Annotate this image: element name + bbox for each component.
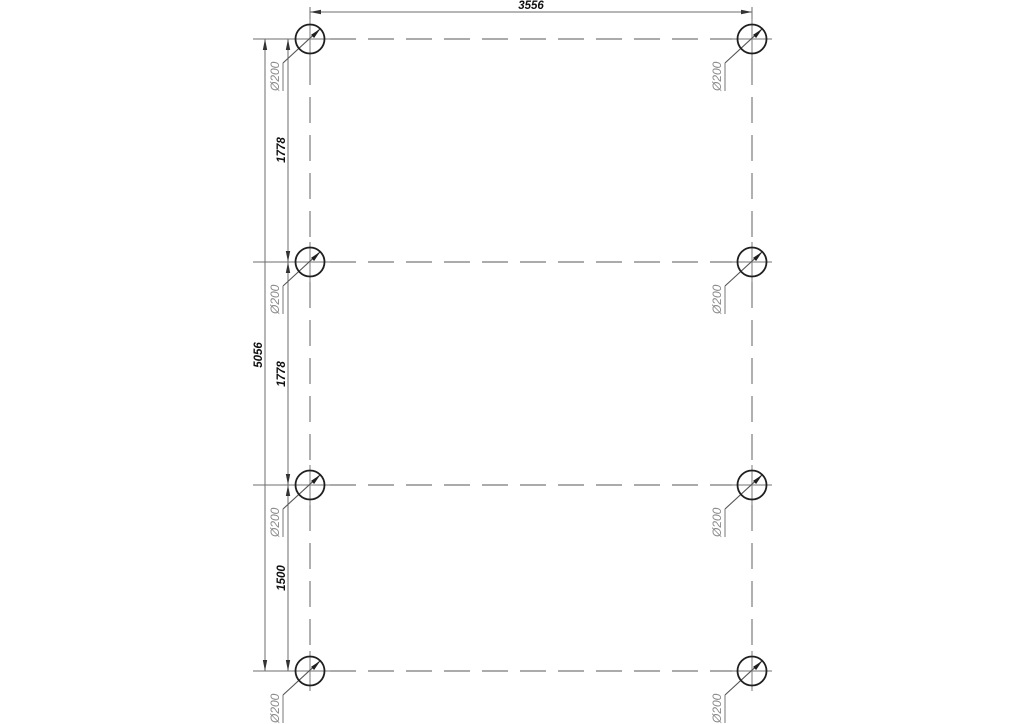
pile-marker: Ø200 xyxy=(710,651,772,724)
pile-marker: Ø200 xyxy=(710,242,772,315)
arrow-down-icon xyxy=(286,251,290,262)
total-dimension-value: 5056 xyxy=(253,342,265,368)
pile-layout-drawing: 3556 5056 1778 1778 1500 Ø200 Ø200 Ø2 xyxy=(0,0,1024,724)
arrow-up-icon xyxy=(286,485,290,496)
arrow-down-icon xyxy=(286,660,290,671)
pile-diameter-label: Ø200 xyxy=(710,693,724,724)
pile-marker: Ø200 xyxy=(268,242,330,315)
pile-marker: Ø200 xyxy=(710,465,772,538)
chain-segment-3-value: 1500 xyxy=(276,565,288,591)
arrow-up-icon xyxy=(286,262,290,273)
top-dimension-value: 3556 xyxy=(518,0,544,12)
pile-diameter-label: Ø200 xyxy=(710,507,724,538)
extension-lines xyxy=(253,7,752,671)
pile-diameter-label: Ø200 xyxy=(710,284,724,315)
pile-marker: Ø200 xyxy=(268,465,330,538)
arrow-up-icon xyxy=(286,39,290,50)
arrow-right-icon xyxy=(741,10,752,14)
arrow-left-icon xyxy=(310,10,321,14)
pile-diameter-label: Ø200 xyxy=(710,61,724,92)
left-total-dimension: 5056 xyxy=(253,39,267,671)
centerline-grid xyxy=(310,39,752,671)
left-chain-dimension: 1778 1778 1500 xyxy=(276,39,290,671)
arrow-down-icon xyxy=(263,660,267,671)
pile-marker: Ø200 xyxy=(710,19,772,92)
chain-segment-2-value: 1778 xyxy=(276,361,288,387)
pile-markers: Ø200 Ø200 Ø200 Ø200 Ø200 Ø200 Ø200 xyxy=(268,19,772,724)
chain-segment-1-value: 1778 xyxy=(276,137,288,163)
top-dimension: 3556 xyxy=(310,0,752,14)
pile-diameter-label: Ø200 xyxy=(268,507,282,538)
pile-diameter-label: Ø200 xyxy=(268,693,282,724)
drawing-canvas: 3556 5056 1778 1778 1500 Ø200 Ø200 Ø2 xyxy=(0,0,1024,724)
pile-marker: Ø200 xyxy=(268,19,330,92)
pile-diameter-label: Ø200 xyxy=(268,61,282,92)
arrow-down-icon xyxy=(286,474,290,485)
pile-diameter-label: Ø200 xyxy=(268,284,282,315)
pile-marker: Ø200 xyxy=(268,651,330,724)
arrow-up-icon xyxy=(263,39,267,50)
